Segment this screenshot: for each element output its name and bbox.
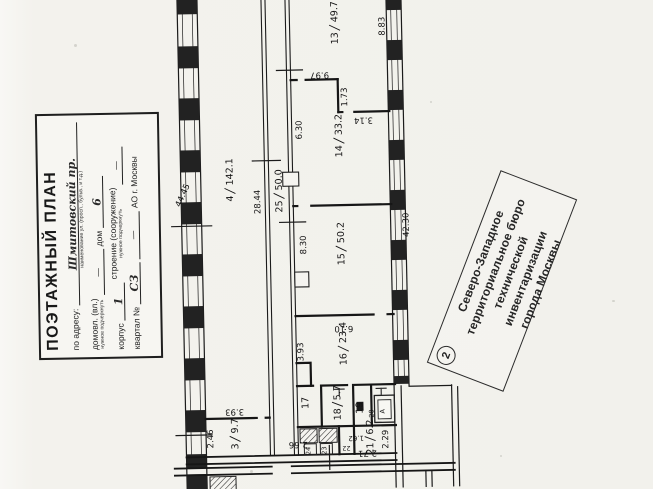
room-label-20: 20: [368, 409, 376, 417]
dim-8-30: 8.30: [299, 235, 309, 254]
floor-plan-title-block: ПОЭТАЖНЫЙ ПЛАН по адресу: Шмитовский пр.…: [35, 112, 163, 360]
svg-text:16: 16: [338, 353, 349, 365]
kvartal-label: квартал №: [131, 307, 142, 350]
dim-42-30: 42.30: [401, 212, 412, 237]
stamp-number-badge: 2: [434, 343, 459, 368]
dim-1-73: 1.73: [340, 87, 350, 106]
svg-text:15: 15: [336, 253, 347, 265]
stroenie-sublabel: нужное подчеркнуть: [118, 209, 125, 258]
svg-text:6.2: 6.2: [365, 419, 376, 434]
dom-label: дом: [94, 231, 104, 247]
svg-text:13: 13: [330, 32, 341, 44]
title-block-heading: ПОЭТАЖНЫЙ ПЛАН: [41, 123, 63, 351]
dim-2-46: 2.46: [206, 429, 216, 448]
room-label-4: 4 142.1: [224, 158, 236, 201]
svg-text:9.7: 9.7: [230, 418, 241, 433]
room-label-18: 18 5.7: [332, 385, 344, 420]
room-label-22: 22: [342, 444, 350, 452]
dim-3-93-b: 3.93: [225, 406, 244, 416]
wall-pilaster: [283, 172, 299, 186]
korpus-label: корпус: [116, 323, 126, 349]
stroenie-value: —: [110, 146, 123, 184]
svg-text:142.1: 142.1: [224, 158, 236, 185]
svg-text:25: 25: [274, 200, 285, 212]
room-labels: 13 49.7 14 33.2 15 50.2 16 23.4: [221, 0, 387, 457]
svg-text:3: 3: [230, 443, 241, 449]
dim-3-93-a: 3.93: [296, 342, 306, 361]
dim-2-29: 2.29: [381, 430, 391, 449]
room-label-17: 17: [300, 397, 311, 409]
dim-8-83: 8.83: [377, 17, 387, 36]
okrug-label: АО г. Москвы: [129, 156, 140, 208]
svg-text:50.2: 50.2: [336, 222, 347, 243]
dim-2-71: 2.71: [358, 447, 377, 457]
exterior-wall-left: [177, 0, 207, 489]
svg-text:18: 18: [333, 408, 344, 420]
dim-6-10: 6.10: [334, 323, 353, 333]
dim-9-97: 9.97: [310, 69, 329, 79]
scanned-floor-plan-page: 1ЭТАЖ: [0, 0, 653, 489]
dim-2-66: 2.66: [289, 439, 308, 449]
bath-letter: А: [379, 408, 387, 413]
domovl-sublabel: нужное подчеркнуть: [99, 300, 106, 349]
svg-text:5.7: 5.7: [332, 385, 343, 400]
domovl-value: —: [92, 249, 105, 295]
bottom-walls: [175, 452, 455, 476]
kvartal-dash: —: [128, 211, 141, 259]
dim-1-62: 1.62: [348, 434, 364, 442]
dim-6-30: 6.30: [294, 120, 304, 139]
room-label-25-corridor: 25 50.0: [274, 169, 286, 212]
corridor-walls: [261, 0, 299, 456]
svg-text:50.0: 50.0: [274, 169, 285, 190]
dim-28-44: 28.44: [253, 190, 264, 215]
dom-value-handwritten: 6: [91, 176, 104, 228]
room-label-14: 14 33.2: [333, 114, 345, 157]
room-label-15: 15 50.2: [336, 222, 348, 265]
svg-text:49.7: 49.7: [329, 1, 340, 22]
svg-text:33.2: 33.2: [333, 114, 344, 135]
room-label-3: 3 9.7: [230, 418, 242, 449]
wall-pilaster: [295, 272, 309, 287]
svg-text:14: 14: [334, 145, 345, 157]
room-label-23: 23: [320, 446, 328, 454]
room-label-13: 13 49.7: [329, 1, 341, 44]
address-label: по адресу:: [70, 309, 81, 351]
korpus-value-handwritten: 1: [113, 282, 126, 320]
room-label-19: 19: [354, 402, 365, 414]
dim-3-14: 3.14: [354, 114, 373, 124]
svg-text:4: 4: [225, 195, 236, 201]
kvartal-value-handwritten: СЗ: [128, 262, 141, 304]
